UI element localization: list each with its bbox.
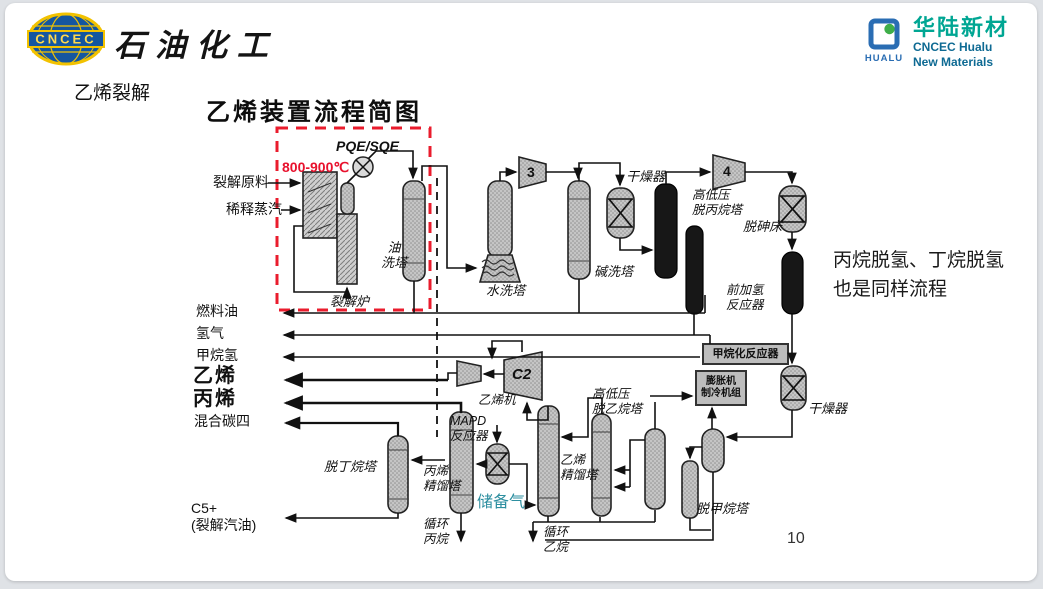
pqe-sqe-label: PQE/SQE	[336, 138, 399, 155]
diagram-title: 乙烯装置流程简图	[206, 92, 422, 127]
section-title: 乙烯裂解	[74, 78, 150, 105]
cncec-logo-text: CNCEC	[35, 32, 96, 47]
hualu-name-cn: 华陆新材	[913, 16, 1009, 40]
mapd-reactor-vessel	[486, 444, 509, 484]
depropanizer-label: 高低压 脱丙烷塔	[692, 188, 742, 218]
c2-compressor-label: C2	[512, 366, 531, 384]
water-wash-tower-label: 水洗塔	[486, 283, 525, 298]
caustic-wash-tower-vessel	[568, 181, 590, 279]
dryer-2-label: 干燥器	[808, 401, 847, 416]
caustic-wash-tower-label: 碱洗塔	[594, 264, 633, 279]
ethylene-tower-vessel	[538, 406, 559, 516]
water-wash-tower-vessel	[480, 181, 520, 282]
cracking-feed-label: 裂解原料	[213, 174, 269, 191]
methane-hydrogen-label: 甲烷氢	[196, 347, 238, 364]
booster-compressor-shape	[457, 361, 481, 386]
arsenic-bed-vessel	[779, 186, 806, 232]
deethanizer-label: 高低压 脱乙烷塔	[592, 387, 642, 417]
c5-plus-label: C5+ (裂解汽油)	[191, 500, 256, 533]
brand-name: 石油化工	[114, 20, 278, 65]
slide-canvas: CNCEC 石油化工 乙烯裂解 HUALU 华陆新材 CNCEC Hualu N…	[0, 0, 1043, 589]
fuel-oil-label: 燃料油	[196, 303, 238, 320]
dryer-1-label: 干燥器	[626, 169, 665, 184]
front-hydrogenation-vessel	[782, 252, 803, 314]
hualu-name-en-1: CNCEC Hualu	[913, 40, 1009, 55]
arsenic-bed-label: 脱砷床	[743, 219, 782, 234]
demethanizer-label: 脱甲烷塔	[696, 501, 748, 516]
temperature-annotation: 800-900℃	[282, 159, 349, 176]
hualu-logo: HUALU 华陆新材 CNCEC Hualu New Materials	[865, 16, 1009, 70]
cracking-furnace-label: 裂解炉	[330, 294, 369, 309]
oil-wash-tower-label: 油 洗塔	[381, 240, 407, 271]
page-number: 10	[787, 530, 805, 549]
dryer-2-vessel	[781, 366, 806, 410]
propylene-tower-label: 丙烯 精馏塔	[423, 464, 461, 494]
hualu-logo-text: HUALU	[865, 53, 903, 64]
hydrogen-label: 氢气	[196, 325, 224, 342]
debutanizer-label: 脱丁烷塔	[324, 459, 376, 474]
propylene-label: 丙烯	[193, 388, 237, 412]
dryer-1-vessel	[607, 188, 634, 238]
dilution-steam-label: 稀释蒸汽	[226, 201, 282, 218]
debutanizer-vessel	[388, 436, 408, 513]
ethylene-label: 乙烯	[193, 365, 237, 389]
hualu-logo-icon: HUALU	[865, 16, 905, 66]
mapd-reactor-label: MAPD 反应器	[450, 414, 488, 444]
recycle-ethane-label: 循环 乙烷	[543, 525, 568, 555]
recycle-propane-label: 循环 丙烷	[423, 517, 448, 547]
hualu-name-en-2: New Materials	[913, 55, 1009, 70]
cncec-logo-icon: CNCEC	[26, 12, 106, 71]
ethylene-compressor-label: 乙烯机	[478, 393, 516, 408]
methanation-reactor-label: 甲烷化反应器	[703, 344, 788, 364]
reserve-gas-label: 储备气	[477, 494, 525, 513]
side-note: 丙烷脱氢、丁烷脱氢 也是同样流程	[833, 246, 1033, 305]
mixed-c4-label: 混合碳四	[194, 413, 250, 430]
compressor-3-label: 3	[527, 164, 535, 181]
expander-chiller-label: 膨胀机 制冷机组	[696, 371, 746, 405]
ethylene-tower-label: 乙烯 精馏塔	[560, 453, 598, 483]
compressor-4-label: 4	[723, 163, 731, 180]
front-hydrogenation-label: 前加氢 反应器	[726, 283, 764, 313]
